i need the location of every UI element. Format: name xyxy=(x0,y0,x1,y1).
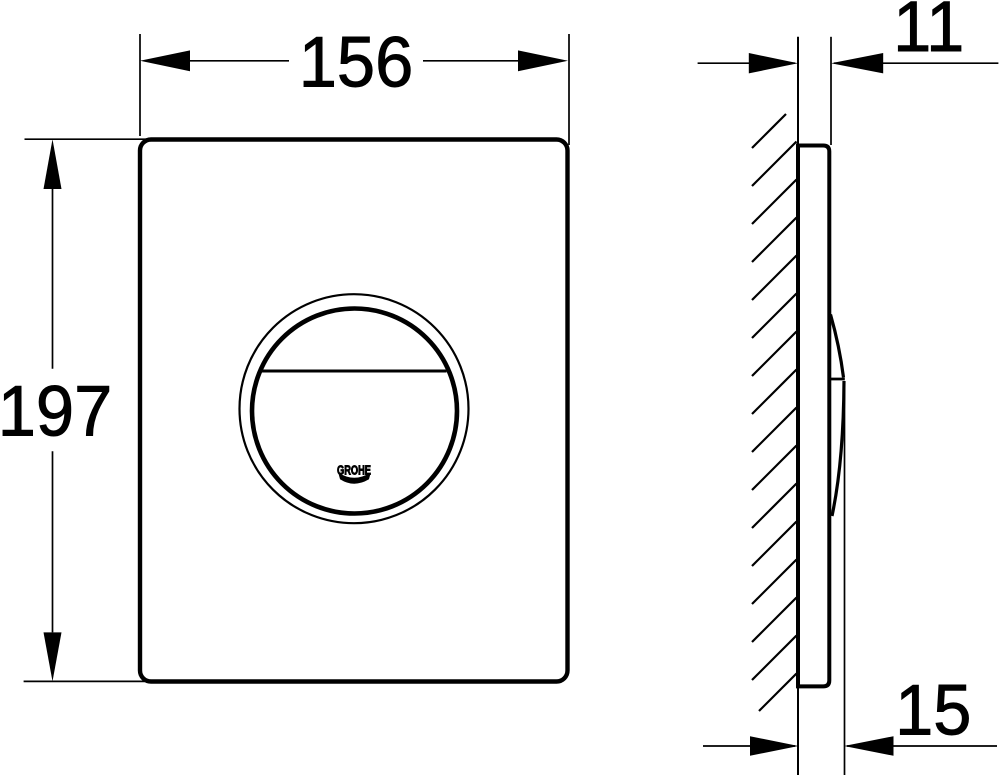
svg-text:15: 15 xyxy=(895,670,971,750)
svg-text:11: 11 xyxy=(893,0,964,66)
svg-text:156: 156 xyxy=(299,22,414,102)
svg-text:197: 197 xyxy=(0,371,112,451)
